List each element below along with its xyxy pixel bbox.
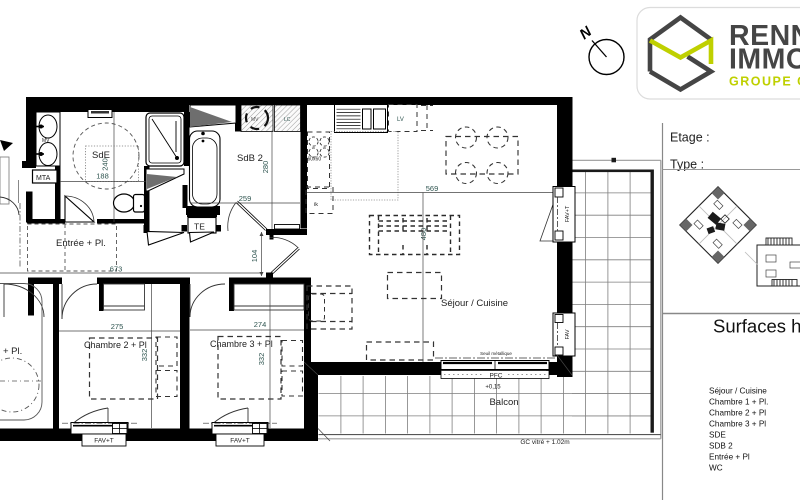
svg-text:FAV: FAV (565, 329, 571, 339)
svg-text:240: 240 (101, 158, 110, 171)
svg-text:ik: ik (314, 202, 318, 208)
svg-text:Seuil métallique: Seuil métallique (480, 351, 512, 356)
svg-text:Entrée + Pl.: Entrée + Pl. (56, 238, 106, 249)
svg-text:PFC: PFC (490, 373, 503, 380)
svg-text:FAV+T: FAV+T (565, 205, 571, 222)
svg-text:Balcon: Balcon (489, 397, 518, 408)
svg-text:Séjour / Cuisine: Séjour / Cuisine (709, 387, 767, 396)
svg-text:MV: MV (42, 138, 50, 144)
svg-text:Chambre 3 + Pl: Chambre 3 + Pl (210, 339, 273, 349)
svg-text:188: 188 (96, 172, 109, 181)
svg-text:Chambre 2 + Pl: Chambre 2 + Pl (84, 340, 147, 350)
svg-text:332: 332 (140, 349, 149, 362)
svg-text:Chambre 2 + Pl: Chambre 2 + Pl (709, 409, 766, 418)
svg-text:274: 274 (254, 320, 267, 329)
svg-text:LC: LC (284, 117, 291, 123)
svg-text:GROUPE CA: GROUPE CA (729, 75, 800, 89)
svg-text:275: 275 (111, 322, 124, 331)
svg-text:Entrée + Pl: Entrée + Pl (709, 453, 750, 462)
svg-text:+ Pl.: + Pl. (3, 346, 22, 357)
svg-text:569: 569 (426, 184, 439, 193)
svg-text:SDE: SDE (709, 431, 726, 440)
svg-text:MTA: MTA (36, 175, 51, 182)
svg-text:Séjour / Cuisine: Séjour / Cuisine (441, 298, 508, 309)
svg-text:Chambre 1 + Pl.: Chambre 1 + Pl. (709, 398, 768, 407)
svg-text:FAV+T: FAV+T (94, 438, 114, 445)
svg-text:LV: LV (397, 117, 404, 123)
svg-text:TE: TE (194, 222, 205, 232)
svg-text:IMMOBIL: IMMOBIL (729, 44, 800, 76)
svg-text:259: 259 (239, 194, 252, 203)
svg-text:Chambre 3 + Pl: Chambre 3 + Pl (709, 420, 766, 429)
svg-text:Surfaces hab: Surfaces hab (713, 316, 800, 337)
svg-text:60x60: 60x60 (308, 157, 322, 163)
svg-text:MV: MV (251, 117, 259, 123)
svg-text:FAV+T: FAV+T (230, 438, 250, 445)
svg-text:673: 673 (110, 265, 123, 274)
svg-text:SDB 2: SDB 2 (709, 442, 733, 451)
svg-text:104: 104 (250, 250, 259, 263)
svg-text:280: 280 (261, 161, 270, 174)
svg-text:+0,15: +0,15 (485, 385, 501, 391)
svg-text:332: 332 (257, 353, 266, 366)
svg-text:SdB 2: SdB 2 (237, 153, 263, 164)
svg-text:N: N (577, 24, 596, 43)
svg-text:WC: WC (709, 464, 723, 473)
svg-text:GC vitré + 1.02m: GC vitré + 1.02m (520, 439, 569, 446)
svg-text:Etage :: Etage : (670, 131, 710, 145)
